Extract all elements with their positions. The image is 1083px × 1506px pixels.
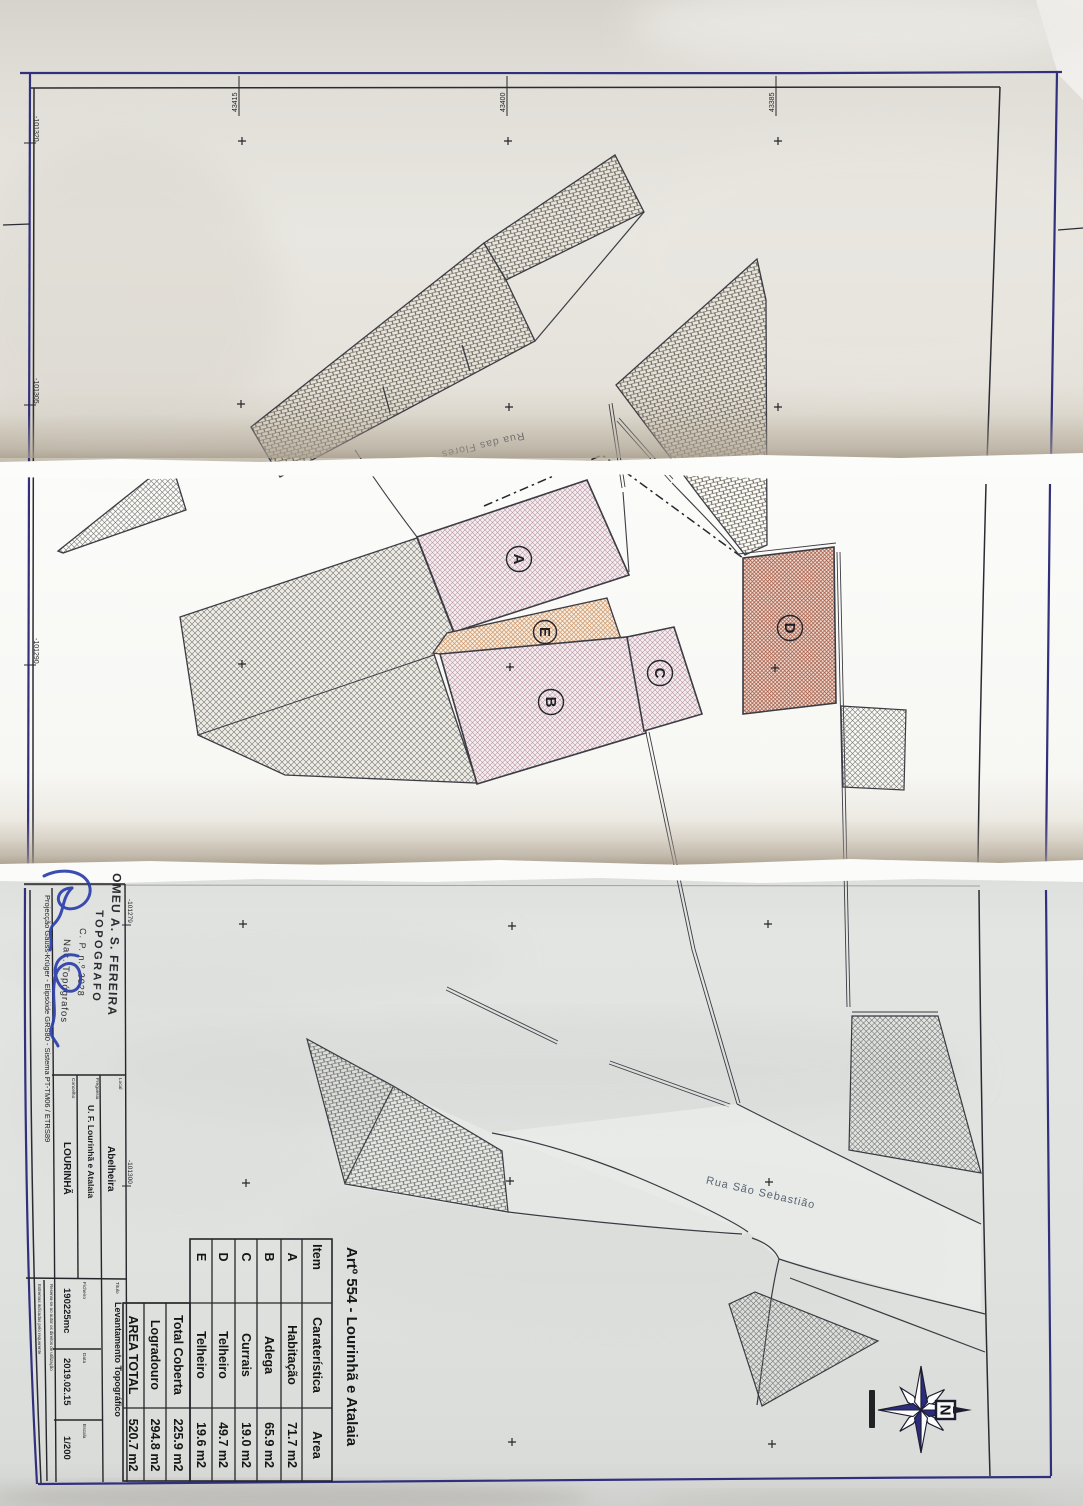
svg-text:Total Coberta: Total Coberta (171, 1315, 185, 1396)
svg-text:B: B (542, 697, 559, 708)
svg-text:E: E (536, 627, 553, 637)
svg-text:1/200: 1/200 (61, 1436, 72, 1460)
svg-text:Local: Local (117, 1078, 123, 1089)
svg-text:Data: Data (81, 1353, 87, 1363)
svg-text:19.6 m2: 19.6 m2 (194, 1422, 208, 1468)
svg-text:43400: 43400 (500, 92, 507, 112)
svg-text:LOURINHÃ: LOURINHÃ (61, 1142, 74, 1195)
svg-text:Estremas indicadas pelo requer: Estremas indicadas pelo requerente (37, 1284, 42, 1355)
svg-text:Logradouro: Logradouro (148, 1320, 162, 1390)
svg-text:-101300: -101300 (126, 1160, 133, 1184)
svg-text:43385: 43385 (769, 92, 776, 112)
svg-text:-101279: -101279 (126, 899, 133, 923)
svg-text:Adega: Adega (262, 1336, 276, 1375)
svg-text:Caraterística: Caraterística (310, 1317, 324, 1394)
svg-text:65.9 m2: 65.9 m2 (262, 1422, 276, 1468)
svg-text:Freguesia: Freguesia (94, 1078, 100, 1100)
svg-text:Artº 554 - Lourinhã e Atalaia: Artº 554 - Lourinhã e Atalaia (343, 1247, 360, 1447)
svg-text:Telheiro: Telheiro (194, 1331, 208, 1379)
svg-text:D: D (216, 1252, 230, 1261)
svg-text:C: C (239, 1252, 253, 1261)
svg-text:520.7 m2: 520.7 m2 (126, 1419, 140, 1472)
svg-text:Habitação: Habitação (285, 1325, 299, 1385)
svg-text:19.0 m2: 19.0 m2 (239, 1422, 253, 1468)
svg-text:-101320: -101320 (32, 116, 39, 142)
svg-text:Concelho: Concelho (70, 1078, 76, 1099)
svg-text:Telheiro: Telheiro (216, 1331, 230, 1379)
svg-text:AREA TOTAL: AREA TOTAL (126, 1316, 140, 1395)
svg-text:43415: 43415 (232, 92, 239, 112)
svg-text:225.9 m2: 225.9 m2 (171, 1419, 185, 1472)
svg-text:Item: Item (310, 1244, 324, 1270)
svg-text:Abelheira: Abelheira (105, 1146, 116, 1192)
svg-text:Currais: Currais (239, 1333, 253, 1377)
svg-text:Area: Area (310, 1431, 324, 1460)
svg-text:Reserva-se ao autor os direito: Reserva-se ao autor os direitos de utili… (49, 1284, 54, 1371)
svg-text:294.8 m2: 294.8 m2 (148, 1419, 162, 1472)
svg-text:71.7 m2: 71.7 m2 (285, 1422, 299, 1468)
svg-text:N: N (937, 1405, 954, 1416)
svg-text:Titulo: Titulo (114, 1282, 120, 1294)
svg-text:Escala: Escala (81, 1424, 87, 1439)
svg-text:A: A (285, 1252, 299, 1261)
svg-text:-101305: -101305 (32, 378, 39, 404)
svg-text:C: C (651, 668, 668, 679)
svg-text:B: B (262, 1252, 276, 1261)
svg-text:U. F. Lourinhã e Atalaia: U. F. Lourinhã e Atalaia (86, 1105, 96, 1198)
svg-text:A: A (510, 554, 527, 565)
svg-text:E: E (194, 1253, 208, 1261)
svg-text:Ficheiro: Ficheiro (81, 1282, 87, 1299)
svg-text:D: D (781, 623, 798, 634)
svg-text:190225mc: 190225mc (61, 1288, 72, 1333)
svg-text:2019.02.15: 2019.02.15 (61, 1358, 72, 1406)
svg-text:Levantamento Topográfico: Levantamento Topográfico (113, 1302, 123, 1417)
svg-text:49.7 m2: 49.7 m2 (216, 1422, 230, 1468)
svg-text:-101290: -101290 (32, 638, 39, 664)
